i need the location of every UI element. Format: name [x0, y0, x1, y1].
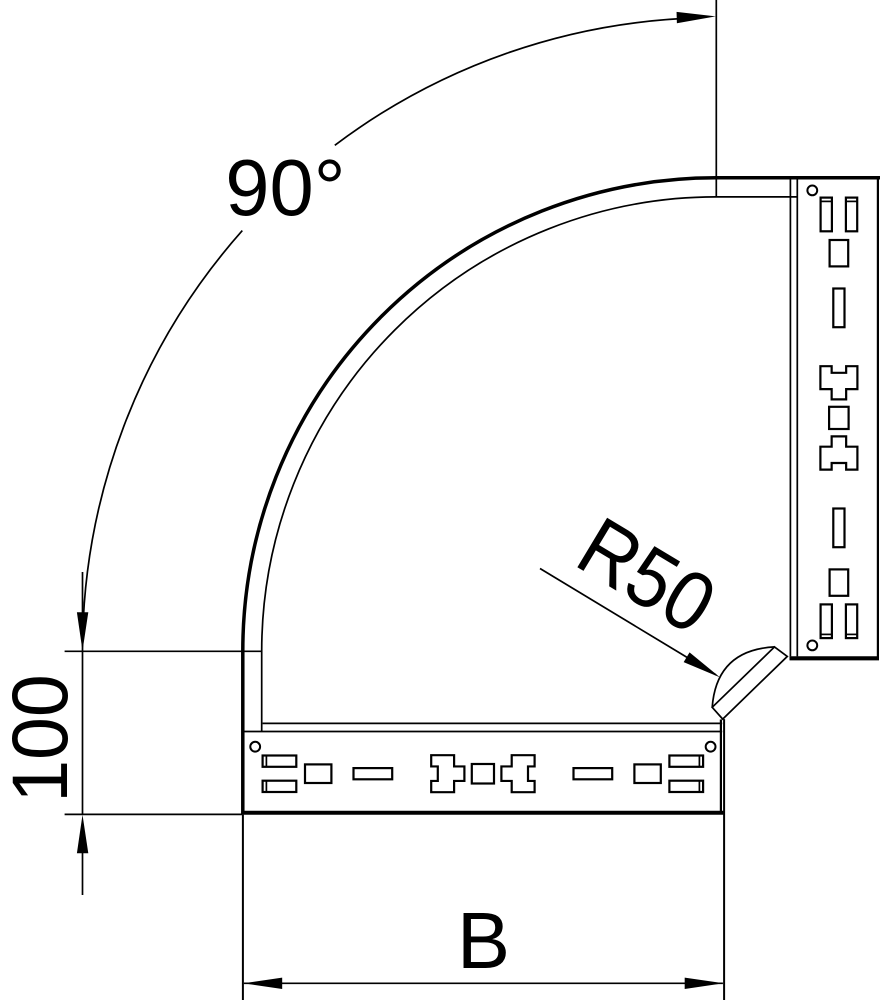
svg-text:B: B: [457, 896, 510, 985]
svg-text:100: 100: [0, 674, 84, 802]
svg-text:90°: 90°: [225, 143, 345, 232]
